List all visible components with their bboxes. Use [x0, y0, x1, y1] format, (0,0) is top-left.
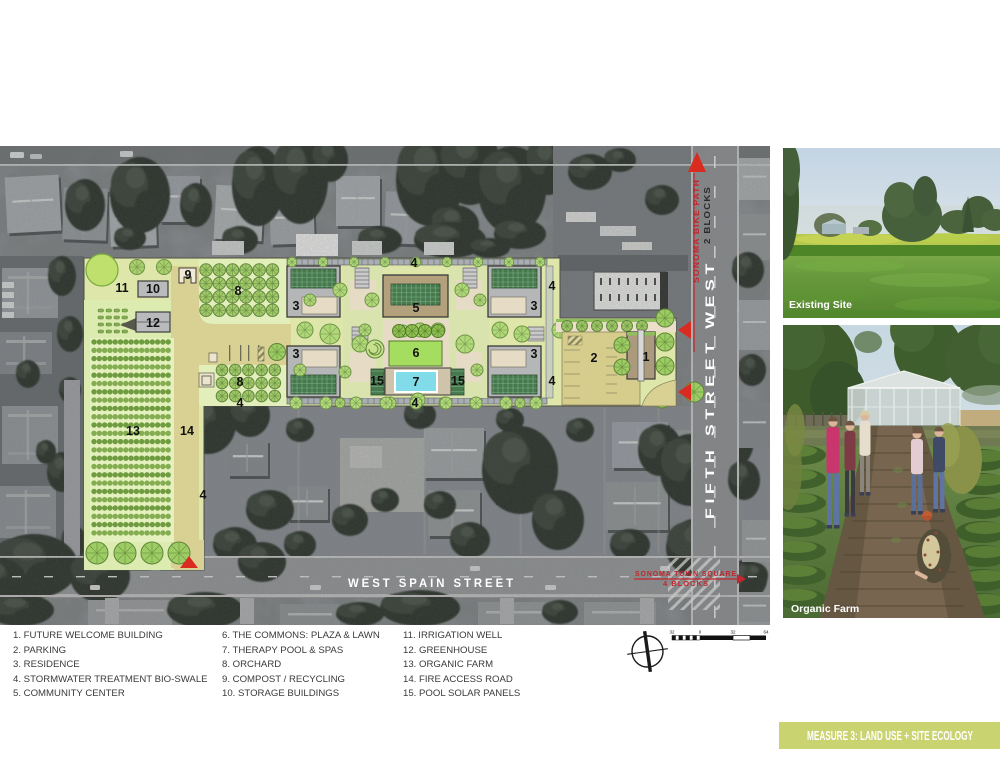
svg-text:MEASURE 3: LAND USE + SITE ECO: MEASURE 3: LAND USE + SITE ECOLOGY — [807, 729, 973, 743]
